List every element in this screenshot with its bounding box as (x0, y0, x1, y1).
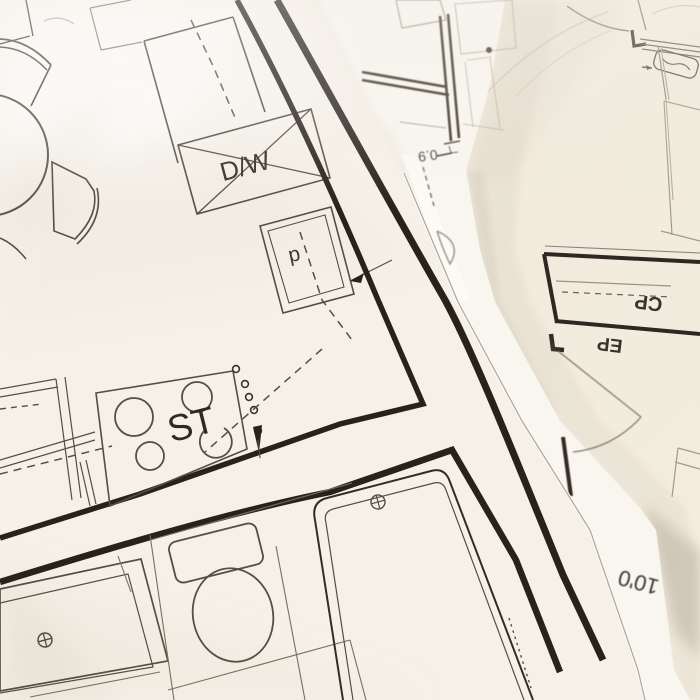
svg-text:EP: EP (596, 332, 624, 356)
svg-text:CP: CP (633, 290, 663, 315)
